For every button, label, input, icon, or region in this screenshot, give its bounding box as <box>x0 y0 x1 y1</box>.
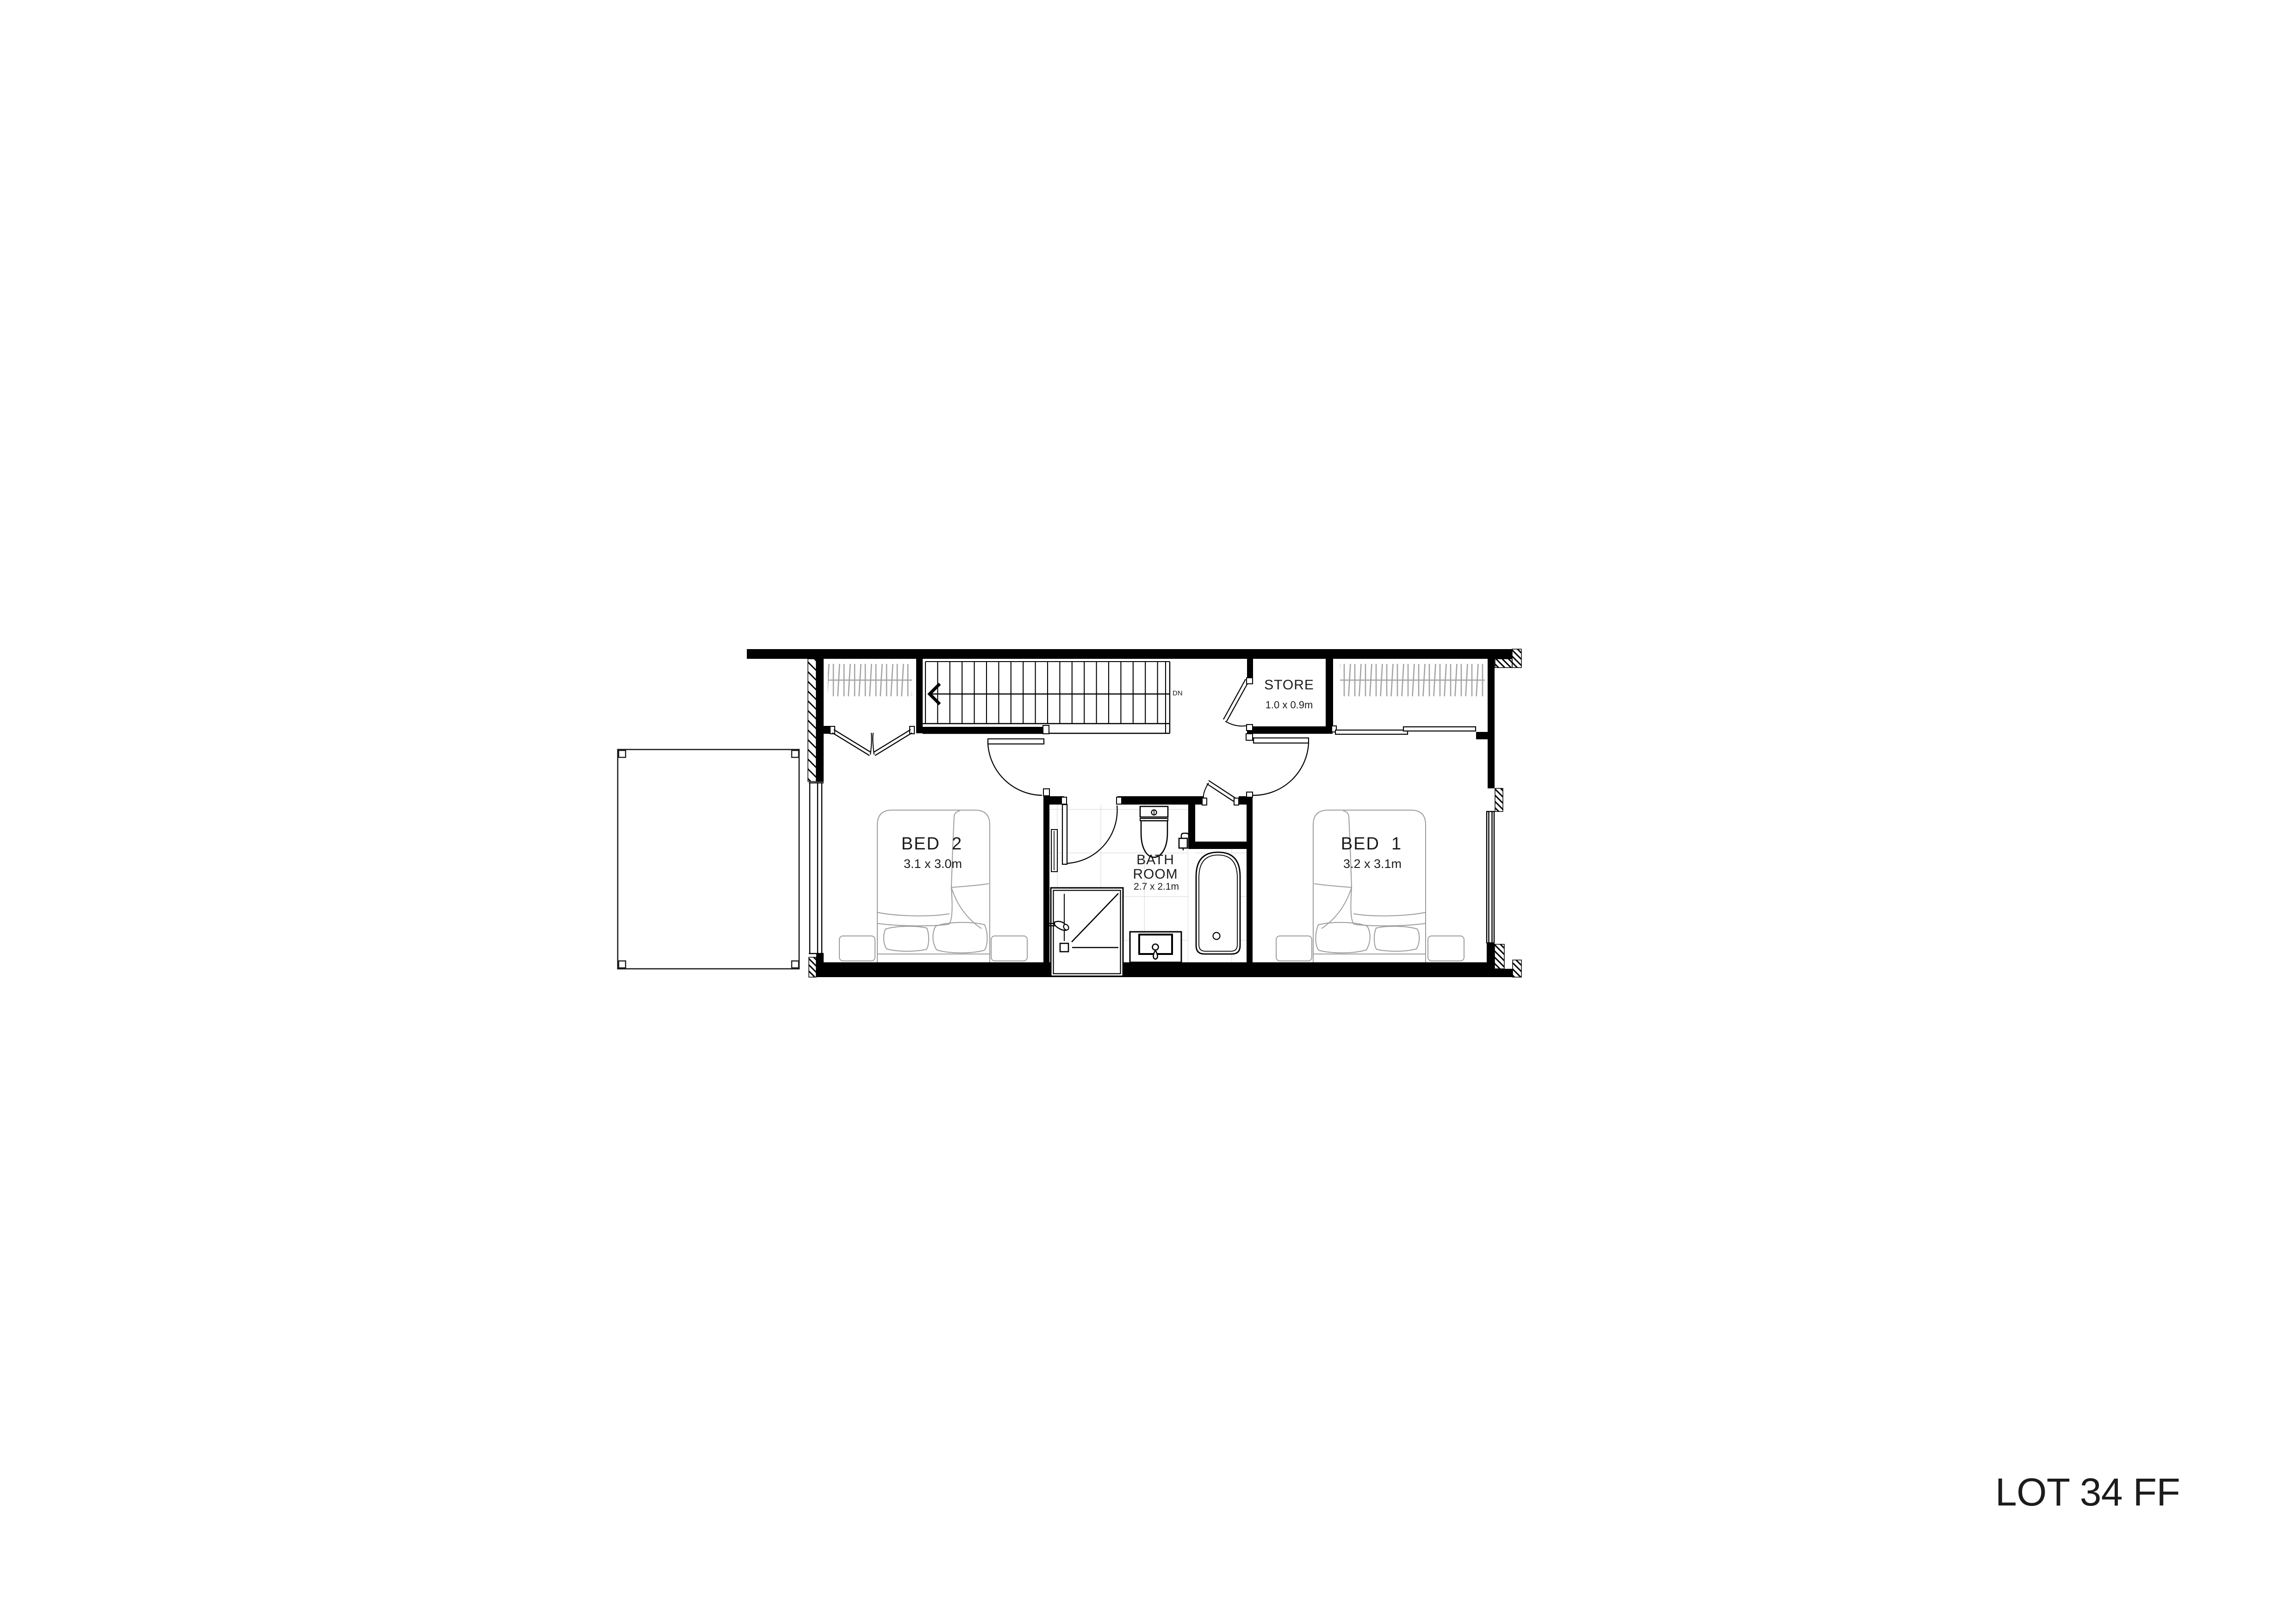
svg-text:BATH: BATH <box>1136 852 1174 867</box>
svg-text:STORE: STORE <box>1264 677 1314 693</box>
svg-text:2.7 x 2.1m: 2.7 x 2.1m <box>1134 881 1179 892</box>
svg-text:BED 2: BED 2 <box>901 834 962 854</box>
svg-text:3.1 x 3.0m: 3.1 x 3.0m <box>904 857 962 871</box>
svg-text:1.0 x 0.9m: 1.0 x 0.9m <box>1266 699 1313 711</box>
svg-text:BED 1: BED 1 <box>1341 834 1402 854</box>
svg-text:LOT 34 FF: LOT 34 FF <box>1995 1470 2180 1514</box>
svg-text:3.2 x 3.1m: 3.2 x 3.1m <box>1343 857 1402 871</box>
svg-text:ROOM: ROOM <box>1133 867 1178 882</box>
svg-text:DN: DN <box>1173 689 1183 697</box>
